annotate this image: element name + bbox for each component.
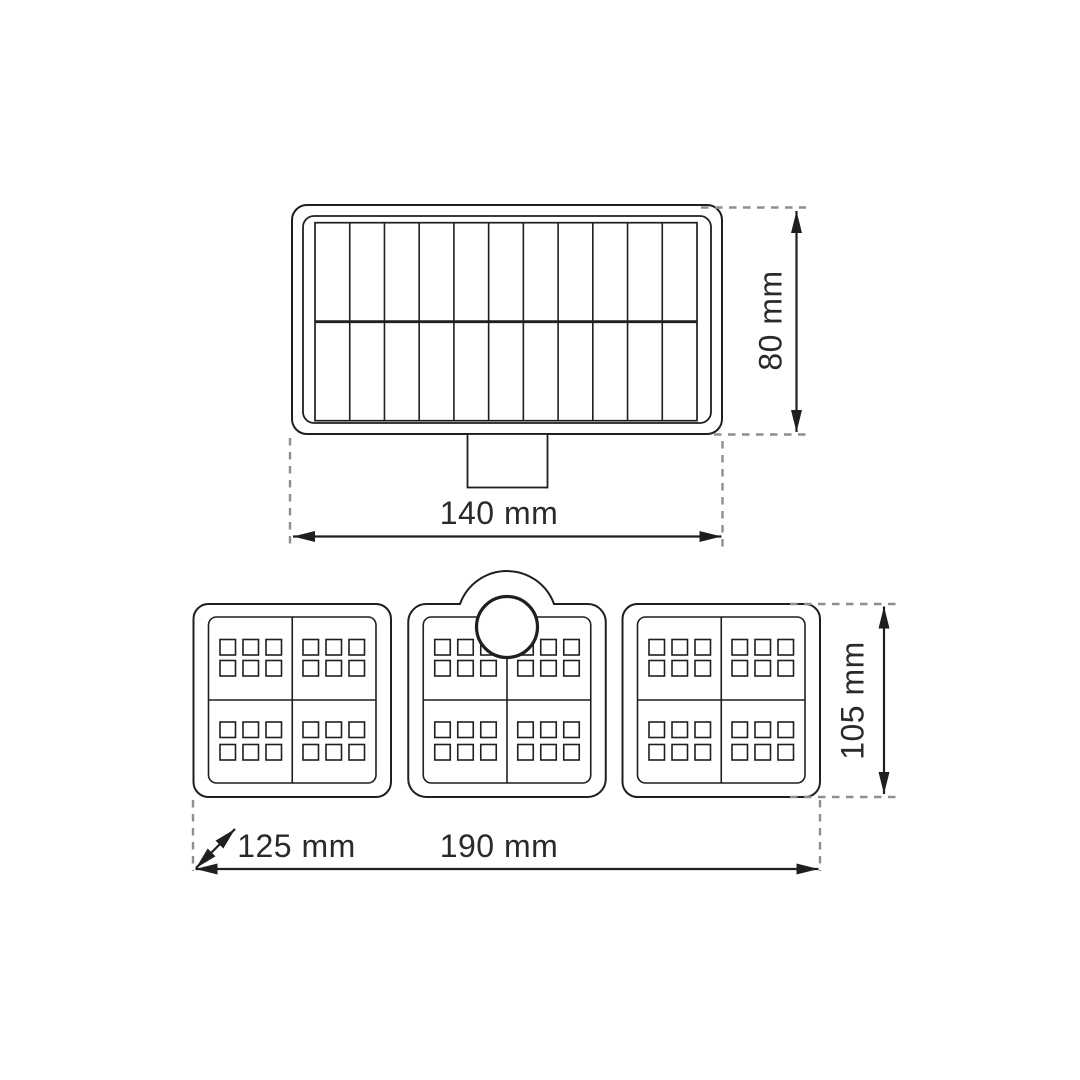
led-square [458,745,474,761]
led-square [564,640,580,656]
led-square [220,661,236,677]
led-square [541,640,557,656]
led-square [458,640,474,656]
led-square [220,745,236,761]
led-square [481,745,497,761]
arrowhead [797,864,819,875]
led-square [220,722,236,738]
dimension-arrow-80 [791,211,802,432]
led-square [435,722,451,738]
solar-panel-top-view [292,205,722,488]
dimension-label-105: 105 mm [835,641,871,760]
dimension-arrow-105 [879,607,890,795]
led-square [349,745,365,761]
dimension-arrow-140 [293,531,722,542]
led-square [649,640,665,656]
led-square [349,640,365,656]
led-square [303,745,319,761]
led-square [732,722,748,738]
led-square [541,661,557,677]
led-square [564,661,580,677]
led-square [778,745,794,761]
led-square [778,640,794,656]
led-square [695,640,711,656]
led-square [672,640,688,656]
led-square [349,661,365,677]
arrowhead [700,531,722,542]
led-square [518,722,534,738]
dimension-label-140: 140 mm [440,495,559,531]
led-square [481,661,497,677]
led-square [755,640,771,656]
led-square [243,661,259,677]
arrowhead [879,772,890,794]
led-square [778,661,794,677]
led-square [326,661,342,677]
led-head-front-view [194,571,821,797]
led-square [732,745,748,761]
led-square [564,722,580,738]
dimension-diagram: 140 mm 80 mm 105 mm [0,0,1080,1080]
led-square [303,640,319,656]
arrowhead [293,531,315,542]
led-square [326,640,342,656]
led-square [266,722,282,738]
dimension-label-190: 190 mm [440,828,559,864]
led-square [349,722,365,738]
dimension-arrow-190 [196,864,819,875]
led-square [541,722,557,738]
led-square [303,661,319,677]
mounting-bracket [468,434,548,488]
led-square [755,722,771,738]
led-square [649,661,665,677]
led-square [243,745,259,761]
dimension-label-125: 125 mm [237,828,356,864]
led-square [243,640,259,656]
led-square [541,745,557,761]
led-square [518,745,534,761]
led-square [672,722,688,738]
led-square [435,640,451,656]
led-square [220,640,236,656]
arrowhead [791,211,802,233]
led-square [326,722,342,738]
led-square [695,745,711,761]
led-square [649,722,665,738]
led-square [303,722,319,738]
led-square [755,745,771,761]
dimension-arrow-125 [196,829,235,868]
led-square [672,661,688,677]
led-square [732,640,748,656]
led-square [458,661,474,677]
dimension-depth-head: 125 mm [196,828,356,868]
led-square [266,640,282,656]
led-square [755,661,771,677]
led-square [518,661,534,677]
led-square [266,661,282,677]
arrowhead [879,607,890,629]
led-square [695,722,711,738]
arrowhead [791,410,802,432]
led-square [481,722,497,738]
led-square [564,745,580,761]
dimension-label-80: 80 mm [753,270,789,370]
led-square [778,722,794,738]
led-square [243,722,259,738]
solar-housing-outer [292,205,722,434]
led-square [695,661,711,677]
led-square [435,661,451,677]
led-square [266,745,282,761]
led-square [672,745,688,761]
motion-sensor [477,597,538,658]
led-square [649,745,665,761]
led-square [326,745,342,761]
led-square [458,722,474,738]
led-square [732,661,748,677]
led-square [435,745,451,761]
